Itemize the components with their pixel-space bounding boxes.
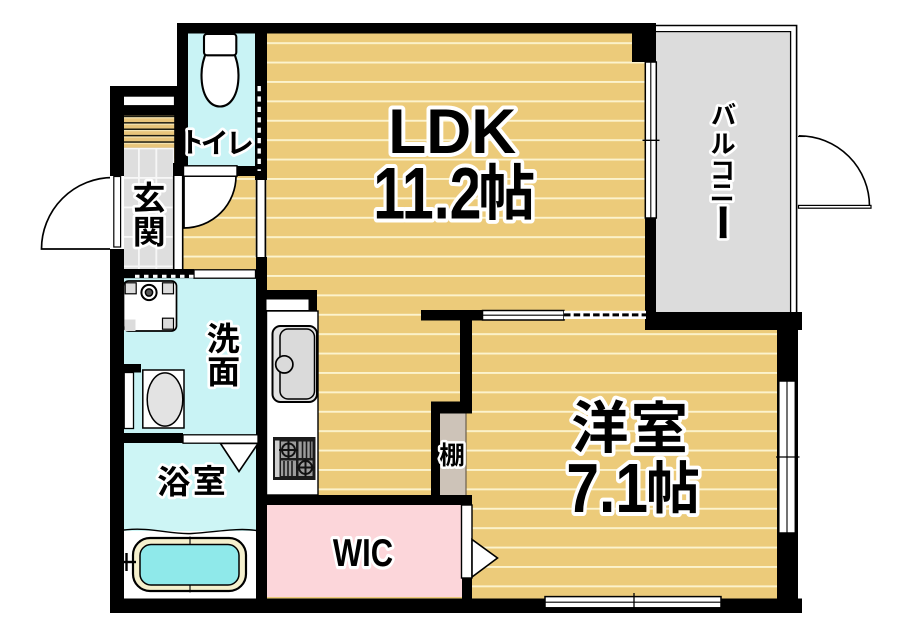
svg-text:WIC: WIC — [333, 532, 393, 575]
svg-text:11.2: 11.2 — [373, 153, 481, 234]
svg-text:7.1: 7.1 — [566, 449, 648, 527]
